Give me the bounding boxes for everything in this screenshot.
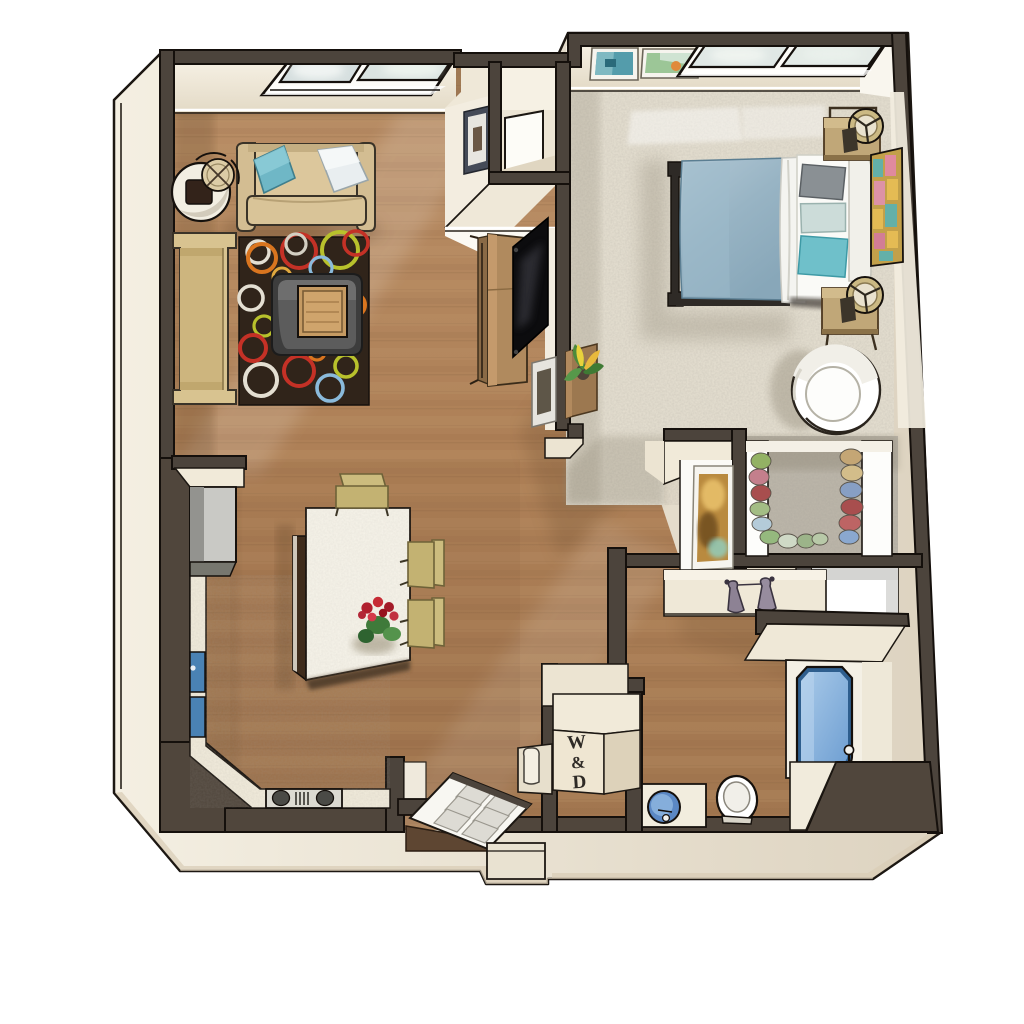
svg-text:W: W [566,731,586,753]
svg-text:&: & [570,753,585,773]
svg-text:D: D [572,771,587,793]
